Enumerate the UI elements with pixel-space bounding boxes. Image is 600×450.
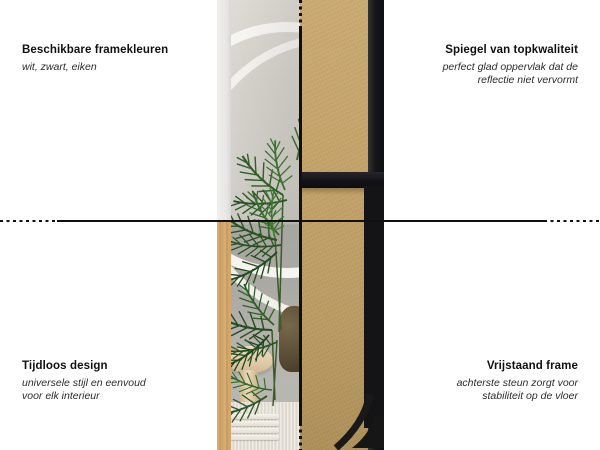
seam-dotted-top <box>299 0 302 28</box>
callout-subtitle-line: perfect glad oppervlak dat de <box>443 61 578 74</box>
callout-title: Spiegel van topkwaliteit <box>443 44 578 56</box>
callout-freestanding-frame: Vrijstaand frame achterste steun zorgt v… <box>457 360 578 404</box>
callout-mirror-quality: Spiegel van topkwaliteit perfect glad op… <box>443 44 578 88</box>
callout-subtitle-line: achterste steun zorgt voor <box>457 377 578 390</box>
callout-subtitle-line: universele stijl en eenvoud <box>22 377 146 390</box>
callout-timeless-design: Tijdloos design universele stijl en eenv… <box>22 360 146 404</box>
white-frame-strip <box>217 0 231 222</box>
callout-subtitle-line: reflectie niet vervormt <box>443 74 578 87</box>
callout-subtitle-line: stabiliteit op de vloer <box>457 390 578 403</box>
oak-frame-strip <box>217 222 231 450</box>
divider-dotted-left <box>0 220 57 222</box>
callout-subtitle-line: wit, zwart, eiken <box>22 61 168 74</box>
divider-dotted-right <box>544 220 600 222</box>
callout-title: Vrijstaand frame <box>457 360 578 372</box>
infographic-canvas: Beschikbare framekleuren wit, zwart, eik… <box>0 0 600 450</box>
mirror-front-photo <box>217 0 300 450</box>
callout-title: Tijdloos design <box>22 360 146 372</box>
callout-frame-colors: Beschikbare framekleuren wit, zwart, eik… <box>22 44 168 74</box>
mirror-back-photo <box>300 0 384 450</box>
seam-dotted-bottom <box>299 423 302 450</box>
seam-line-vertical <box>299 28 302 423</box>
callout-subtitle-line: voor elk interieur <box>22 390 146 403</box>
support-leg-curve <box>300 388 384 450</box>
callout-title: Beschikbare framekleuren <box>22 44 168 56</box>
